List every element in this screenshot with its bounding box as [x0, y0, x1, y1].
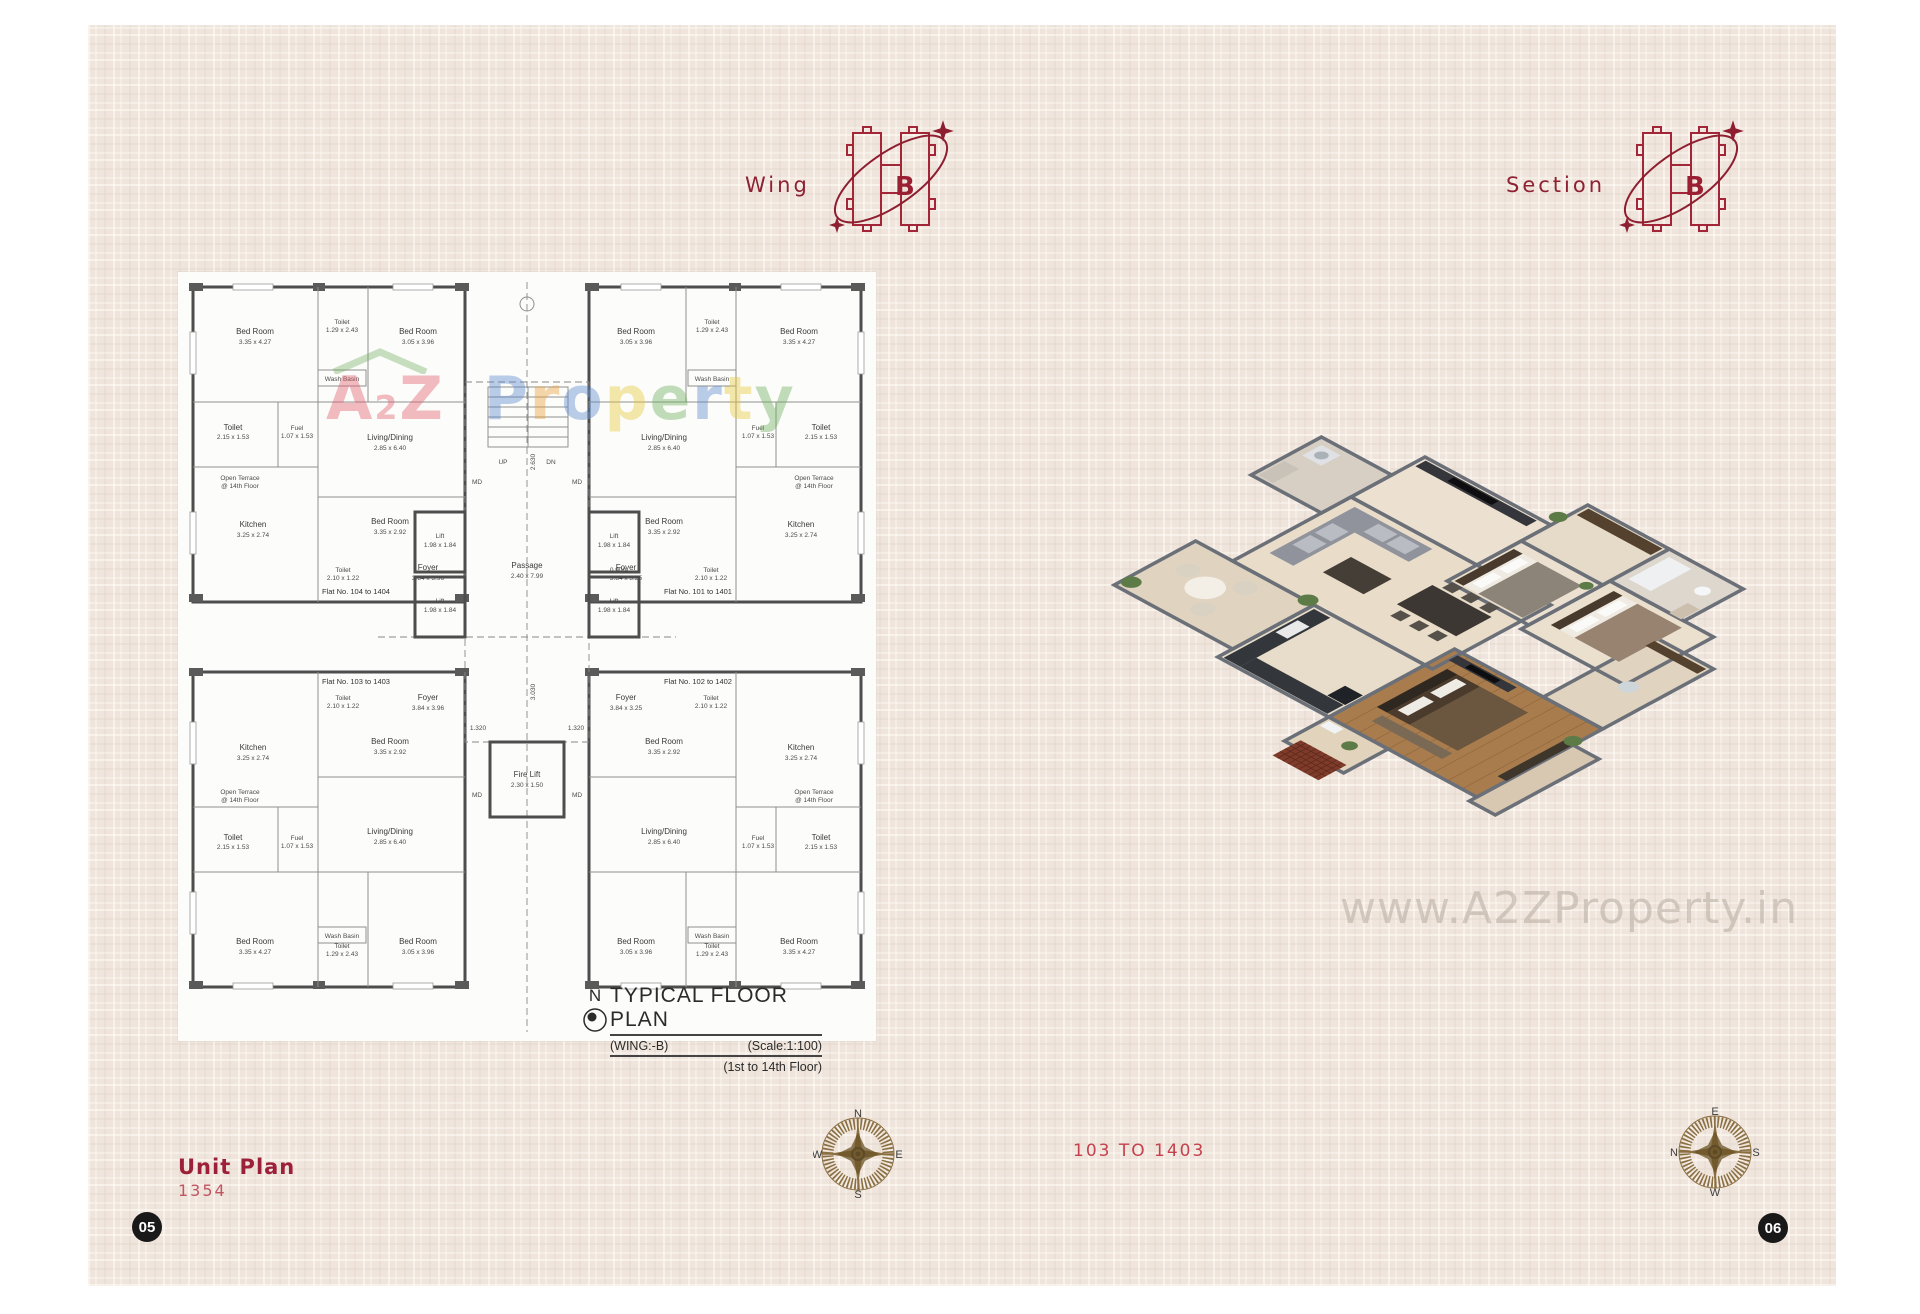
svg-text:1.98 x 1.84: 1.98 x 1.84 [424, 542, 457, 549]
svg-text:MD: MD [572, 792, 582, 799]
svg-text:@ 14th Floor: @ 14th Floor [795, 797, 834, 804]
svg-text:1.29 x 2.43: 1.29 x 2.43 [326, 951, 359, 958]
svg-text:3.030: 3.030 [530, 683, 537, 700]
brochure-spread: Wing B [0, 0, 1920, 1314]
svg-text:1.320: 1.320 [470, 725, 487, 732]
page-number-left: 05 [132, 1212, 162, 1242]
svg-text:Lift: Lift [610, 533, 619, 540]
svg-text:S: S [854, 1189, 861, 1199]
svg-text:Bed Room: Bed Room [236, 937, 274, 946]
svg-text:3.84 x 3.96: 3.84 x 3.96 [412, 575, 445, 582]
svg-text:3.25 x 2.74: 3.25 x 2.74 [785, 755, 818, 762]
flat-number: Flat No. 104 to 1404 [322, 587, 390, 596]
svg-text:Toilet: Toilet [335, 567, 350, 574]
svg-text:Toilet: Toilet [224, 423, 243, 432]
svg-text:Living/Dining: Living/Dining [641, 827, 687, 836]
wing-logo: Wing B [733, 95, 973, 260]
wing-letter: B [895, 172, 915, 202]
svg-text:3.05 x 3.96: 3.05 x 3.96 [402, 339, 435, 346]
svg-text:2.85 x 6.40: 2.85 x 6.40 [648, 445, 681, 452]
svg-text:MD: MD [472, 479, 482, 486]
svg-text:Fuel: Fuel [752, 835, 765, 842]
svg-text:Bed Room: Bed Room [645, 737, 683, 746]
svg-text:1.29 x 2.43: 1.29 x 2.43 [326, 327, 359, 334]
svg-text:2.10 x 1.22: 2.10 x 1.22 [695, 703, 728, 710]
section-letter: B [1685, 172, 1705, 202]
svg-text:3.35 x 4.27: 3.35 x 4.27 [783, 339, 816, 346]
svg-text:Toilet: Toilet [334, 943, 349, 950]
svg-text:1.98 x 1.84: 1.98 x 1.84 [598, 607, 631, 614]
svg-text:1.29 x 2.43: 1.29 x 2.43 [696, 327, 729, 334]
svg-text:2.10 x 1.22: 2.10 x 1.22 [327, 575, 360, 582]
plan-scale: (Scale:1:100) [748, 1039, 822, 1053]
svg-text:W: W [1710, 1187, 1721, 1197]
svg-text:E: E [1711, 1107, 1718, 1118]
svg-text:Kitchen: Kitchen [240, 520, 267, 529]
svg-text:2.10 x 1.22: 2.10 x 1.22 [327, 703, 360, 710]
svg-text:1.07 x 1.53: 1.07 x 1.53 [742, 433, 775, 440]
svg-text:3.25 x 2.74: 3.25 x 2.74 [237, 532, 270, 539]
svg-text:3.35 x 4.27: 3.35 x 4.27 [239, 949, 272, 956]
svg-text:Lift: Lift [436, 598, 445, 605]
svg-text:Living/Dining: Living/Dining [367, 433, 413, 442]
plan-title-block: TYPICAL FLOOR PLAN (WING:-B) (Scale:1:10… [610, 984, 822, 1074]
section-label: Section [1506, 173, 1605, 197]
svg-text:Fuel: Fuel [291, 835, 304, 842]
svg-text:Kitchen: Kitchen [240, 743, 267, 752]
svg-text:@ 14th Floor: @ 14th Floor [221, 483, 260, 490]
svg-text:3.35 x 2.92: 3.35 x 2.92 [374, 529, 407, 536]
svg-text:3.84 x 3.96: 3.84 x 3.96 [412, 705, 445, 712]
svg-text:Toilet: Toilet [224, 833, 243, 842]
svg-text:W: W [813, 1149, 823, 1161]
svg-text:Open Terrace: Open Terrace [794, 475, 834, 482]
photo-watermark: www.A2ZProperty.in [1340, 883, 1798, 934]
svg-text:Open Terrace: Open Terrace [220, 475, 260, 482]
svg-text:Toilet: Toilet [334, 319, 349, 326]
svg-text:3.35 x 2.92: 3.35 x 2.92 [648, 529, 681, 536]
flat-range-label: 103 TO 1403 [1073, 1141, 1205, 1161]
svg-text:Bed Room: Bed Room [780, 327, 818, 336]
svg-text:Toilet: Toilet [703, 567, 718, 574]
svg-text:MD: MD [472, 792, 482, 799]
plan-floors: (1st to 14th Floor) [610, 1057, 822, 1074]
svg-text:1.320: 1.320 [568, 725, 585, 732]
svg-text:@ 14th Floor: @ 14th Floor [221, 797, 260, 804]
svg-text:2.15 x 1.53: 2.15 x 1.53 [217, 844, 250, 851]
svg-text:Passage: Passage [511, 561, 543, 570]
north-arrow: N [580, 986, 610, 1039]
page-number-right: 06 [1758, 1213, 1788, 1243]
svg-text:Bed Room: Bed Room [399, 327, 437, 336]
flat-103-labels: Bed Room 3.35 x 4.27 Toilet 1.29 x 2.43 … [217, 693, 445, 958]
svg-text:Toilet: Toilet [704, 319, 719, 326]
svg-text:2.630: 2.630 [530, 453, 537, 470]
section-building-icon: B [1598, 95, 1758, 260]
svg-text:1.07 x 1.53: 1.07 x 1.53 [742, 843, 775, 850]
north-label: N [580, 986, 610, 1006]
svg-text:Lift: Lift [436, 533, 445, 540]
svg-text:3.35 x 2.92: 3.35 x 2.92 [648, 749, 681, 756]
svg-text:Foyer: Foyer [616, 693, 637, 702]
flat-number: Flat No. 102 to 1402 [664, 677, 732, 686]
svg-text:2.10 x 1.22: 2.10 x 1.22 [695, 575, 728, 582]
svg-text:Open Terrace: Open Terrace [220, 789, 260, 796]
brochure-page: Wing B [88, 25, 1836, 1286]
svg-text:Bed Room: Bed Room [617, 937, 655, 946]
svg-text:Bed Room: Bed Room [617, 327, 655, 336]
stair-up-label: UP [498, 459, 507, 466]
svg-text:N: N [1670, 1147, 1678, 1159]
plan-watermark: A2Z Property [326, 364, 796, 434]
svg-text:Fire Lift: Fire Lift [514, 770, 541, 779]
svg-text:3.05 x 3.96: 3.05 x 3.96 [620, 339, 653, 346]
flat-number: Flat No. 101 to 1401 [664, 587, 732, 596]
svg-text:S: S [1752, 1147, 1759, 1159]
svg-text:3.35 x 2.92: 3.35 x 2.92 [374, 749, 407, 756]
wing-label: Wing [745, 173, 810, 197]
svg-text:1.98 x 1.84: 1.98 x 1.84 [424, 607, 457, 614]
unit-plan-number: 1354 [178, 1181, 295, 1200]
plan-wing: (WING:-B) [610, 1039, 668, 1053]
flat-101-labels: Bed Room 3.35 x 4.27 Toilet 1.29 x 2.43 … [610, 319, 838, 582]
svg-text:3.25 x 2.74: 3.25 x 2.74 [785, 532, 818, 539]
svg-text:2.15 x 1.53: 2.15 x 1.53 [217, 434, 250, 441]
flat-number: Flat No. 103 to 1403 [322, 677, 390, 686]
svg-text:MD: MD [572, 479, 582, 486]
svg-text:Toilet: Toilet [335, 695, 350, 702]
svg-text:3.05 x 3.96: 3.05 x 3.96 [620, 949, 653, 956]
unit-plan-block: Unit Plan 1354 [178, 1155, 295, 1200]
svg-text:Bed Room: Bed Room [371, 737, 409, 746]
svg-text:Bed Room: Bed Room [371, 517, 409, 526]
svg-text:Wash Basin: Wash Basin [325, 933, 360, 940]
svg-text:Wash Basin: Wash Basin [695, 933, 730, 940]
svg-text:Bed Room: Bed Room [780, 937, 818, 946]
svg-text:3.05 x 3.96: 3.05 x 3.96 [402, 949, 435, 956]
svg-text:Bed Room: Bed Room [399, 937, 437, 946]
svg-text:Kitchen: Kitchen [788, 743, 815, 752]
svg-text:Open Terrace: Open Terrace [794, 789, 834, 796]
svg-text:Foyer: Foyer [418, 693, 439, 702]
svg-text:Living/Dining: Living/Dining [367, 827, 413, 836]
svg-text:N: N [854, 1109, 862, 1120]
isometric-floor-plan-render [1030, 395, 1830, 935]
svg-text:@ 14th Floor: @ 14th Floor [795, 483, 834, 490]
svg-text:3.35 x 4.27: 3.35 x 4.27 [239, 339, 272, 346]
svg-text:Toilet: Toilet [703, 695, 718, 702]
svg-text:Foyer: Foyer [418, 563, 439, 572]
compass-right: E S W N [1670, 1107, 1760, 1197]
plan-title: TYPICAL FLOOR PLAN [610, 984, 822, 1036]
unit-plan-label: Unit Plan [178, 1155, 295, 1179]
svg-text:3.25 x 2.74: 3.25 x 2.74 [237, 755, 270, 762]
floor-plan-panel: UP DN Passage 2.40 x 7.99 Lift 1.98 x 1.… [178, 272, 876, 1041]
svg-text:1.07 x 1.53: 1.07 x 1.53 [281, 843, 314, 850]
svg-text:Toilet: Toilet [704, 943, 719, 950]
svg-text:1.29 x 2.43: 1.29 x 2.43 [696, 951, 729, 958]
svg-text:3.84 x 3.25: 3.84 x 3.25 [610, 705, 643, 712]
stair-dn-label: DN [546, 459, 556, 466]
svg-text:Toilet: Toilet [812, 423, 831, 432]
flat-102-labels: Bed Room 3.35 x 4.27 Toilet 1.29 x 2.43 … [610, 693, 838, 958]
svg-text:2.15 x 1.53: 2.15 x 1.53 [805, 844, 838, 851]
section-logo: Section B [1506, 95, 1766, 260]
svg-text:Bed Room: Bed Room [236, 327, 274, 336]
svg-text:2.40 x 7.99: 2.40 x 7.99 [511, 573, 544, 580]
north-circle-icon [581, 1006, 609, 1034]
roof-icon [328, 348, 448, 374]
svg-text:Living/Dining: Living/Dining [641, 433, 687, 442]
svg-text:3.84 x 3.25: 3.84 x 3.25 [610, 575, 643, 582]
svg-text:Foyer: Foyer [616, 563, 637, 572]
wing-building-icon: B [808, 95, 968, 260]
svg-text:Fuel: Fuel [291, 425, 304, 432]
svg-text:2.85 x 6.40: 2.85 x 6.40 [648, 839, 681, 846]
svg-text:2.15 x 1.53: 2.15 x 1.53 [805, 434, 838, 441]
svg-text:2.85 x 6.40: 2.85 x 6.40 [374, 445, 407, 452]
svg-text:3.35 x 4.27: 3.35 x 4.27 [783, 949, 816, 956]
svg-text:Lift: Lift [610, 598, 619, 605]
svg-text:1.98 x 1.84: 1.98 x 1.84 [598, 542, 631, 549]
svg-text:2.85 x 6.40: 2.85 x 6.40 [374, 839, 407, 846]
compass-left: N E S W [813, 1109, 903, 1199]
svg-text:E: E [895, 1149, 902, 1161]
svg-text:2.30 x 1.50: 2.30 x 1.50 [511, 782, 544, 789]
svg-text:Kitchen: Kitchen [788, 520, 815, 529]
svg-text:Toilet: Toilet [812, 833, 831, 842]
svg-text:1.07 x 1.53: 1.07 x 1.53 [281, 433, 314, 440]
svg-text:Bed Room: Bed Room [645, 517, 683, 526]
